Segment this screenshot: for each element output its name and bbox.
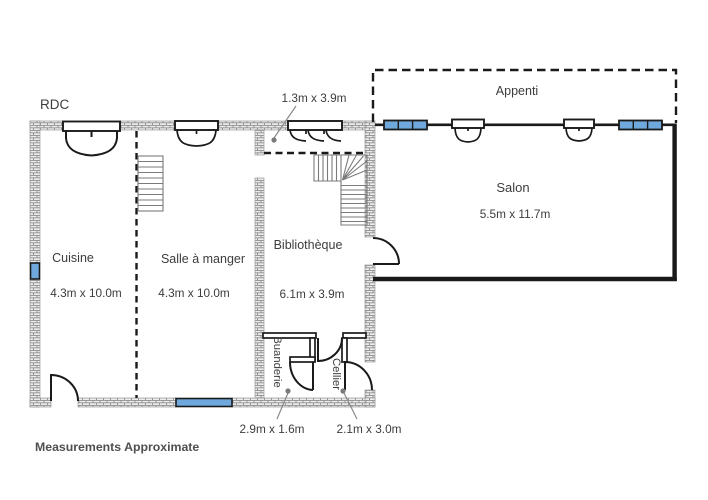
library-salon-door: [373, 238, 399, 264]
kitchen-back-door: [51, 375, 78, 401]
cellier-exterior-door: [345, 362, 372, 390]
floor-plan-page: RDC Cuisine 4.3m x 10.0m Salle à manger …: [0, 0, 708, 500]
room-label-bibliotheque: Bibliothèque: [274, 238, 343, 252]
straight-stairs: [138, 156, 163, 211]
room-dim-bibliotheque: 6.1m x 3.9m: [280, 287, 345, 301]
room-label-salle-a-manger: Salle à manger: [161, 252, 245, 266]
room-label-salon: Salon: [496, 180, 529, 195]
room-dim-salle-a-manger: 4.3m x 10.0m: [158, 286, 230, 300]
room-dim-cuisine: 4.3m x 10.0m: [50, 286, 122, 300]
floor-label: RDC: [40, 97, 69, 112]
salon-walls: [373, 124, 677, 282]
room-label-buanderie: Buanderie: [271, 336, 283, 388]
entrance-french-door: [63, 122, 120, 156]
vestibule-dimension-label: 1.3m x 3.9m: [282, 91, 347, 105]
room-dim-salon: 5.5m x 11.7m: [480, 207, 551, 221]
south-window: [176, 399, 232, 407]
room-label-appenti: Appenti: [496, 84, 538, 98]
room-dim-cellier: 2.1m x 3.0m: [337, 422, 402, 436]
footer-note: Measurements Approximate: [35, 440, 199, 454]
casement-window-salon-1: [452, 120, 484, 143]
casement-window-north-1: [175, 121, 218, 146]
salon-window-right: [619, 121, 662, 130]
room-label-cellier: Cellier: [330, 358, 342, 390]
floor-plan-drawing: RDC Cuisine 4.3m x 10.0m Salle à manger …: [0, 0, 708, 500]
buanderie-door: [290, 362, 313, 390]
kitchen-window-west: [31, 263, 40, 279]
room-label-cuisine: Cuisine: [52, 251, 94, 265]
winder-stairs: [314, 155, 367, 225]
casement-window-salon-2: [564, 120, 594, 142]
room-dim-buanderie: 2.9m x 1.6m: [240, 422, 305, 436]
salon-window-left: [384, 121, 427, 130]
casement-window-north-2: [288, 121, 342, 141]
